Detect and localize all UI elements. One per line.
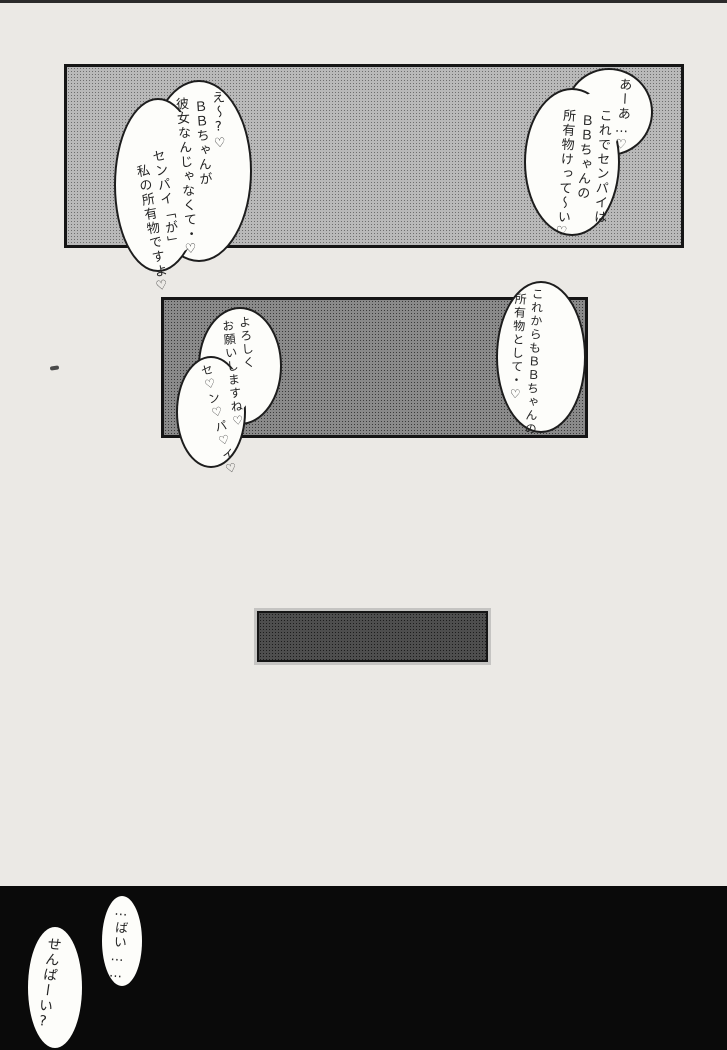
speech-bubble-bottom-right: …ばい……: [102, 896, 142, 986]
panel-dark-bar: [257, 611, 488, 662]
speech-bubble-middle-right: これからもＢＢちゃんの 所有物として・♡: [496, 281, 586, 433]
manga-page: え〜?♡ ＢＢちゃんが 彼女なんじゃなくて・♡ センパイ「が」 私の所有物ですよ…: [0, 0, 727, 1050]
page-top-edge-line: [0, 0, 727, 3]
stray-ink-mark: [50, 365, 59, 370]
speech-bubble-top-right: あーあ…♡ これでセンパイは ＢＢちゃんの 所有物けって〜い♡: [524, 68, 653, 236]
bubble-text: え〜?♡ ＢＢちゃんが 彼女なんじゃなくて・♡: [170, 90, 236, 259]
speech-bubble-bottom-left: せんぱーい?: [28, 927, 82, 1048]
bubble-text: あーあ…♡ これでセンパイは ＢＢちゃんの 所有物けって〜い♡: [551, 74, 632, 244]
speech-bubble-middle-left: よろしく お願いしますね♡ セ♡ン♡パ♡イ♡: [176, 307, 282, 468]
speech-bubble-top-left: え〜?♡ ＢＢちゃんが 彼女なんじゃなくて・♡ センパイ「が」 私の所有物ですよ…: [114, 78, 252, 274]
